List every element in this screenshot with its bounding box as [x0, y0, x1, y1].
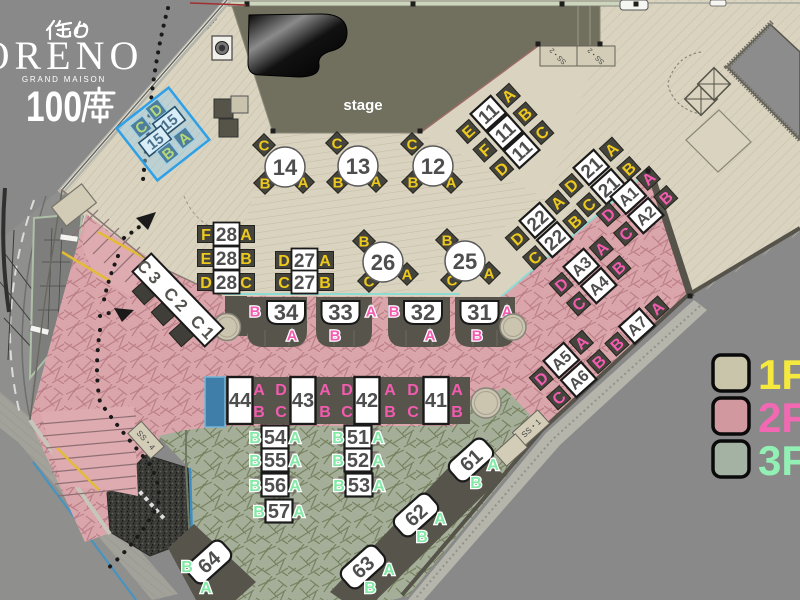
- svg-text:D: D: [200, 275, 212, 292]
- svg-text:25: 25: [453, 249, 477, 274]
- svg-text:B: B: [253, 404, 265, 421]
- svg-text:C: C: [332, 136, 343, 153]
- svg-text:C: C: [341, 404, 353, 421]
- svg-text:C: C: [407, 404, 419, 421]
- svg-text:13: 13: [346, 154, 370, 179]
- svg-text:C: C: [259, 138, 270, 155]
- svg-text:B: B: [333, 478, 345, 495]
- svg-text:A: A: [240, 227, 252, 244]
- svg-text:32: 32: [411, 300, 435, 325]
- svg-text:14: 14: [273, 155, 298, 180]
- svg-text:B: B: [330, 327, 341, 344]
- svg-text:B: B: [249, 430, 261, 447]
- svg-text:A: A: [487, 457, 499, 474]
- svg-text:A: A: [287, 327, 298, 344]
- svg-text:B: B: [364, 580, 376, 597]
- svg-text:C: C: [407, 137, 418, 154]
- svg-text:A: A: [373, 478, 385, 495]
- svg-text:28: 28: [216, 225, 237, 246]
- svg-text:52: 52: [347, 450, 369, 472]
- svg-text:B: B: [253, 504, 265, 521]
- svg-text:stage: stage: [343, 97, 382, 114]
- svg-text:42: 42: [356, 390, 378, 412]
- svg-text:56: 56: [264, 475, 286, 497]
- svg-text:31: 31: [467, 300, 491, 325]
- svg-text:41: 41: [425, 390, 447, 412]
- svg-text:B: B: [472, 327, 483, 344]
- svg-text:A: A: [402, 267, 413, 284]
- svg-text:A: A: [384, 382, 396, 399]
- svg-text:26: 26: [371, 250, 395, 275]
- svg-text:A: A: [383, 562, 395, 579]
- svg-text:55: 55: [264, 450, 286, 472]
- svg-text:B: B: [319, 404, 331, 421]
- svg-text:A: A: [293, 504, 305, 521]
- svg-text:A: A: [434, 511, 446, 528]
- svg-text:44: 44: [229, 390, 252, 412]
- svg-text:B: B: [319, 275, 331, 292]
- svg-text:A: A: [372, 453, 384, 470]
- svg-text:A: A: [319, 253, 331, 270]
- svg-text:B: B: [389, 303, 400, 320]
- svg-text:A: A: [289, 453, 301, 470]
- svg-text:E: E: [201, 251, 212, 268]
- svg-text:B: B: [181, 559, 193, 576]
- svg-text:3F: 3F: [758, 437, 800, 484]
- svg-text:B: B: [249, 478, 261, 495]
- svg-text:A: A: [200, 580, 212, 597]
- svg-text:51: 51: [347, 427, 369, 449]
- svg-text:A: A: [289, 478, 301, 495]
- svg-text:B: B: [384, 404, 396, 421]
- svg-text:43: 43: [292, 390, 314, 412]
- svg-text:B: B: [416, 529, 428, 546]
- svg-text:A: A: [484, 266, 495, 283]
- svg-text:28: 28: [216, 249, 237, 270]
- svg-text:12: 12: [421, 154, 445, 179]
- svg-text:B: B: [332, 453, 344, 470]
- svg-text:2F: 2F: [758, 394, 800, 441]
- svg-text:34: 34: [274, 300, 299, 325]
- svg-text:F: F: [201, 227, 211, 244]
- svg-text:100: 100: [26, 83, 82, 131]
- svg-text:C: C: [240, 275, 252, 292]
- svg-text:A: A: [366, 303, 377, 320]
- svg-text:33: 33: [328, 300, 352, 325]
- svg-text:A: A: [253, 382, 265, 399]
- svg-text:B: B: [250, 303, 261, 320]
- svg-text:28: 28: [216, 273, 237, 294]
- svg-text:B: B: [451, 404, 463, 421]
- svg-text:A: A: [451, 382, 463, 399]
- svg-text:D: D: [407, 382, 419, 399]
- svg-text:A: A: [425, 327, 436, 344]
- svg-text:53: 53: [348, 475, 370, 497]
- svg-text:1F: 1F: [758, 351, 800, 398]
- svg-text:C: C: [278, 275, 290, 292]
- svg-text:54: 54: [264, 427, 287, 449]
- svg-text:27: 27: [294, 251, 315, 272]
- svg-text:C: C: [275, 404, 287, 421]
- svg-text:B: B: [249, 453, 261, 470]
- svg-text:B: B: [332, 430, 344, 447]
- svg-text:57: 57: [268, 501, 290, 523]
- svg-text:B: B: [470, 475, 482, 492]
- svg-text:27: 27: [294, 273, 315, 294]
- svg-text:A: A: [372, 430, 384, 447]
- svg-text:D: D: [278, 253, 290, 270]
- svg-text:D: D: [275, 382, 287, 399]
- svg-text:B: B: [240, 251, 252, 268]
- svg-text:A: A: [289, 430, 301, 447]
- svg-text:A: A: [319, 382, 331, 399]
- svg-text:D: D: [341, 382, 353, 399]
- svg-text:ORENO: ORENO: [0, 33, 143, 78]
